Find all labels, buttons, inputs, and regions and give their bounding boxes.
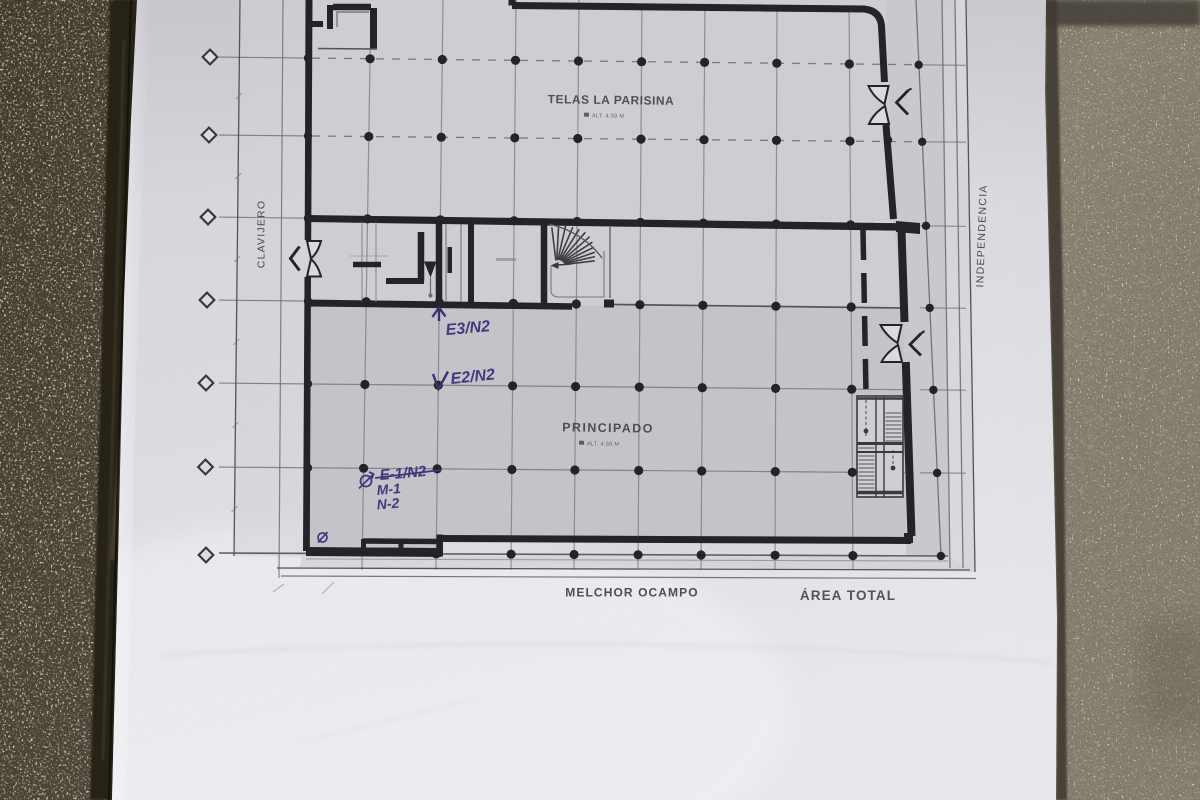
svg-text:PRINCIPADO: PRINCIPADO — [562, 420, 654, 435]
svg-text:N-2: N-2 — [376, 495, 400, 513]
svg-text:ALT. 4.50 M: ALT. 4.50 M — [587, 441, 619, 447]
svg-text:MELCHOR OCAMPO: MELCHOR OCAMPO — [565, 586, 698, 600]
svg-text:ALT. 4.50 M: ALT. 4.50 M — [592, 113, 624, 119]
svg-text:CLAVIJERO: CLAVIJERO — [256, 200, 268, 268]
svg-text:ÁREA TOTAL: ÁREA TOTAL — [800, 588, 896, 603]
svg-text:TELAS LA PARISINA: TELAS LA PARISINA — [548, 92, 675, 108]
